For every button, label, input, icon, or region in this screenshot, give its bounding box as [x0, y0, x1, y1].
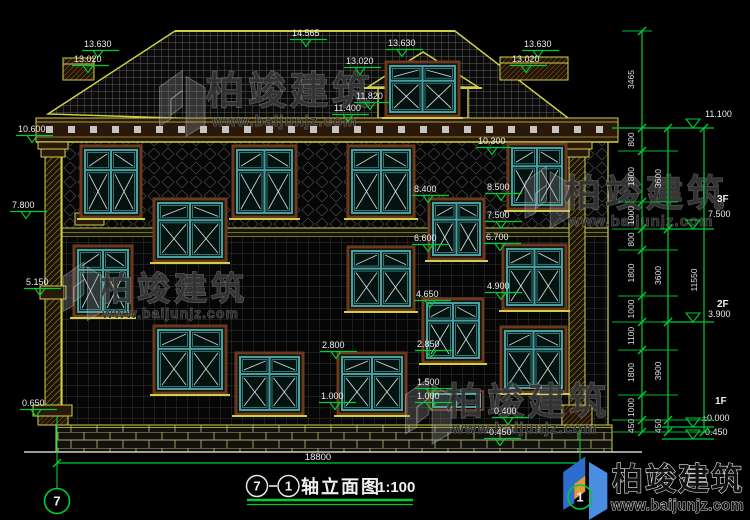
axis-bubble-1-label: 1	[576, 490, 583, 505]
window	[344, 247, 418, 312]
cornice-dentil	[398, 126, 405, 133]
cornice-dentil	[442, 126, 449, 133]
title-axis-start: 7	[253, 479, 260, 494]
window	[425, 199, 488, 261]
elevation-label: 2.800	[322, 340, 345, 350]
cornice-dentil	[112, 126, 119, 133]
watermark-url: www.baijunjz.com	[451, 420, 597, 437]
window	[229, 146, 300, 219]
watermark: 柏竣建筑www.baijunjz.com	[64, 262, 249, 321]
cornice-dentil	[596, 126, 603, 133]
elevation-label: 4.650	[416, 289, 439, 299]
elevation-label: 1.000	[321, 391, 344, 401]
window	[150, 199, 230, 263]
cornice-dentil	[574, 126, 581, 133]
dimension-value: 3900	[653, 361, 663, 380]
dimension-value: 1800	[626, 263, 636, 282]
dimension-value: 1000	[626, 398, 636, 417]
dimension-value: 1000	[626, 206, 636, 225]
elevation-label: 13.020	[74, 54, 102, 64]
elevation-label: 10.300	[478, 136, 506, 146]
dimension-value: 450	[653, 419, 663, 433]
elevation-label: 13.630	[524, 39, 552, 49]
watermark-text: 柏竣建筑	[100, 270, 248, 307]
dimension-value: 11550	[689, 268, 699, 291]
cornice-dentil	[178, 126, 185, 133]
floor-elevation: ±0.000	[702, 413, 729, 423]
cornice-dentil	[464, 126, 471, 133]
window	[499, 245, 570, 311]
window	[382, 62, 463, 118]
dimension-value: 1000	[626, 299, 636, 318]
column-capital	[38, 142, 68, 149]
window	[232, 353, 307, 416]
axis-bubble-7: 7	[45, 489, 70, 514]
elevation-label: 14.565	[292, 28, 320, 38]
axis-bubble-7-label: 7	[53, 494, 60, 509]
elevation-label: 2.850	[417, 339, 440, 349]
dimension-value: 1800	[626, 167, 636, 186]
elevation-label: 7.800	[12, 200, 35, 210]
dimension-value: 3465	[626, 70, 636, 89]
cornice-dentil	[156, 126, 163, 133]
elevation-label: 0.400	[494, 406, 517, 416]
elevation-label: 1.500	[417, 377, 440, 387]
window	[344, 146, 418, 219]
floor-label: 3F	[717, 194, 729, 205]
dimension-value: 3600	[653, 266, 663, 285]
elevation-label: 13.630	[84, 39, 112, 49]
brand-logo: 柏竣建筑 www.baijunjz.com	[563, 456, 744, 519]
elevation-label: 11.400	[334, 103, 361, 113]
cornice-dentil	[376, 126, 383, 133]
cornice-dentil	[90, 126, 97, 133]
dimension-value: 1800	[626, 363, 636, 382]
elevation-label: 7.500	[487, 210, 510, 220]
elevation-label: 6.600	[414, 233, 437, 243]
column-neck	[41, 149, 65, 157]
cornice-dentil	[530, 126, 537, 133]
elevation-label: 6.700	[486, 232, 509, 242]
elevation-label: 11.820	[356, 91, 383, 101]
title-axis-end: 1	[285, 479, 292, 494]
watermark-url: www.baijunjz.com	[211, 113, 357, 130]
watermark-url: www.baijunjz.com	[101, 305, 239, 321]
column-neck	[565, 149, 589, 157]
cornice-dentil	[508, 126, 515, 133]
watermark-text: 柏竣建筑	[446, 380, 610, 422]
elevation-label: 10.600	[18, 124, 46, 134]
cornice-dentil	[486, 126, 493, 133]
dimension-value: 3600	[653, 169, 663, 188]
elevation-label: 13.020	[346, 56, 374, 66]
elevation-label: 1.000	[417, 391, 440, 401]
overall-width-dimension: 18800	[305, 452, 331, 463]
elevation-label: 8.400	[414, 184, 437, 194]
floor-elevation: 7.500	[708, 209, 731, 219]
window	[334, 353, 410, 416]
floor-elevation: 3.900	[708, 309, 731, 319]
generated-drawing: 柏竣建筑www.baijunjz.com柏竣建筑www.baijunjz.com…	[0, 0, 750, 520]
drawing-title: 轴立面图	[301, 476, 381, 497]
elevation-label: 5.150	[26, 277, 49, 287]
elevation-drawing: 柏竣建筑www.baijunjz.com柏竣建筑www.baijunjz.com…	[0, 0, 750, 520]
cornice-dentil	[46, 126, 53, 133]
elevation-label: 4.900	[487, 281, 510, 291]
elevation-label: 8.500	[487, 182, 510, 192]
floor-elevation: 11.100	[705, 109, 732, 119]
floor-label: 1F	[715, 396, 727, 407]
cornice-dentil	[68, 126, 75, 133]
elevation-label: -0.450	[486, 427, 512, 437]
brand-url: www.baijunjz.com	[610, 498, 744, 514]
brand-name: 柏竣建筑	[612, 462, 744, 497]
dimension-value: 800	[626, 232, 636, 246]
window	[77, 146, 145, 219]
cad-canvas: 柏竣建筑www.baijunjz.com柏竣建筑www.baijunjz.com…	[0, 0, 750, 520]
elevation-label: 13.630	[388, 38, 416, 48]
dimension-value: 1100	[626, 327, 636, 346]
cornice-dentil	[420, 126, 427, 133]
dimension-value: 450	[626, 419, 636, 433]
elevation-label: 0.650	[22, 398, 45, 408]
elevation-label: 13.020	[512, 54, 540, 64]
drawing-scale: 1:100	[377, 479, 415, 496]
dimension-value: 800	[626, 132, 636, 146]
cornice-dentil	[552, 126, 559, 133]
cornice-dentil	[134, 126, 141, 133]
window	[150, 326, 230, 395]
